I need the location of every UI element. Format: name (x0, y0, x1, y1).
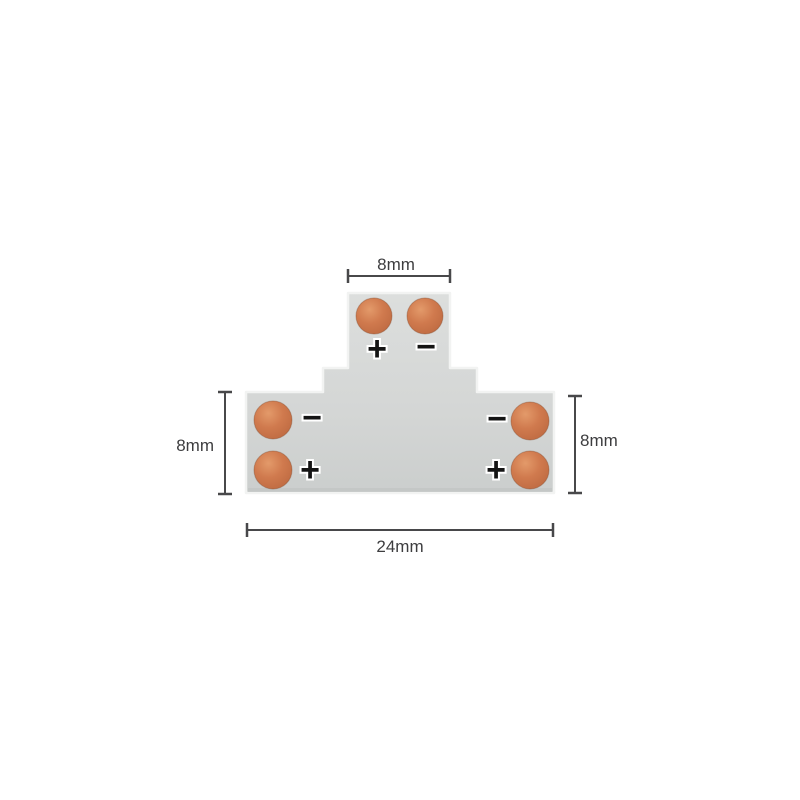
polarity-top-minus: − (416, 328, 436, 366)
solder-pad-right-plus (511, 451, 549, 489)
dimension-right-height: 8mm (568, 396, 618, 493)
solder-pad-left-minus (254, 401, 292, 439)
polarity-right-minus: − (487, 400, 507, 438)
dimension-label-left: 8mm (176, 436, 214, 455)
dimension-label-bottom: 24mm (376, 537, 423, 556)
solder-pad-top-plus (356, 298, 392, 334)
connector-body (246, 293, 554, 493)
product-dimension-diagram: + − − + − + 8mm 8mm 8mm (0, 0, 800, 800)
connector-reflection (246, 493, 554, 693)
polarity-right-plus: + (486, 451, 506, 489)
led-strip-connector: + − − + − + (246, 293, 554, 493)
polarity-left-plus: + (300, 451, 320, 489)
dimension-label-top: 8mm (377, 255, 415, 274)
polarity-top-plus: + (367, 330, 387, 368)
solder-pad-right-minus (511, 402, 549, 440)
polarity-left-minus: − (302, 399, 322, 437)
solder-pad-left-plus (254, 451, 292, 489)
dimension-left-height: 8mm (176, 392, 232, 494)
diagram-canvas: + − − + − + 8mm 8mm 8mm (0, 0, 800, 800)
dimension-top-width: 8mm (348, 255, 450, 283)
dimension-label-right: 8mm (580, 431, 618, 450)
